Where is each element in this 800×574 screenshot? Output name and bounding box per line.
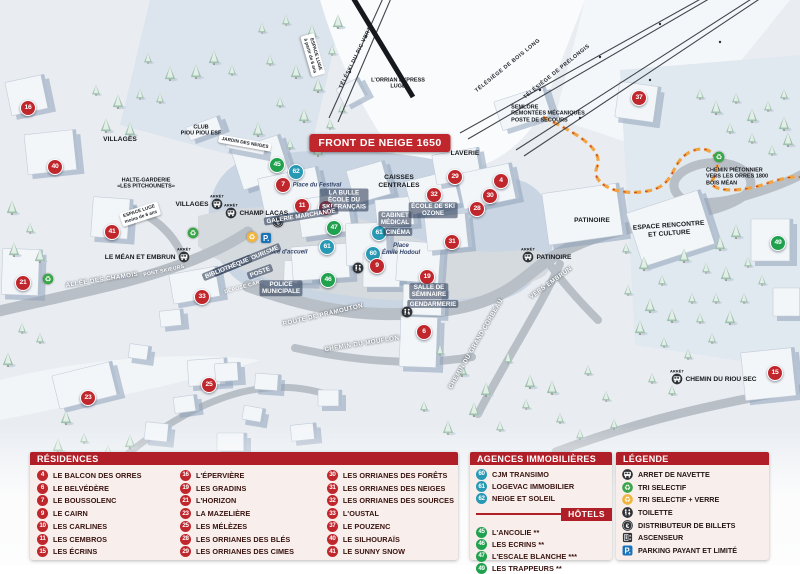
map-label: TÉLÉSIÈGE DE PRÉLONGIS xyxy=(523,43,592,101)
item-number-badge: 33 xyxy=(327,508,338,519)
residences-column-1: 4LE BALCON DES ORRES6LE BELVÉDÈRE7LE BOU… xyxy=(37,470,180,557)
panel-legende-title: LÉGENDE xyxy=(616,452,769,465)
residence-item: 21L'HORIZON xyxy=(180,495,327,506)
residences-list: 4LE BALCON DES ORRES6LE BELVÉDÈRE7LE BOU… xyxy=(30,465,458,557)
residence-item: 10LES CARLINES xyxy=(37,521,180,532)
svg-text:P.: P. xyxy=(625,546,631,555)
residence-item: 23LA MAZELIÈRE xyxy=(180,508,327,519)
legende-label: TRI SELECTIF + VERRE xyxy=(638,495,719,504)
arret-label: ARRÊT xyxy=(521,247,535,251)
item-number-badge: 62 xyxy=(476,493,487,504)
map-marker-15: 15 xyxy=(767,365,783,381)
residence-item: 6LE BELVÉDÈRE xyxy=(37,483,180,494)
map-marker-47: 47 xyxy=(326,220,342,236)
item-number-badge: 15 xyxy=(37,546,48,557)
hotels-divider: HÔTELS xyxy=(476,508,612,521)
item-number-badge: 45 xyxy=(476,527,487,538)
item-number-badge: 10 xyxy=(37,521,48,532)
item-number-badge: 6 xyxy=(37,483,48,494)
item-number-badge: 31 xyxy=(327,483,338,494)
residence-item: 29LES ORRIANES DES CIMES xyxy=(180,546,327,557)
item-label: LE POUZENC xyxy=(343,522,391,531)
map-label: CABINET MÉDICAL xyxy=(378,211,411,227)
map-label: PONT SKIEURS xyxy=(143,264,185,279)
residence-item: 40LE SILHOURAÏS xyxy=(327,533,454,544)
agence-item: 60CJM TRANSIMO xyxy=(476,469,607,480)
map-label: CHEMIN DU MOUFLON xyxy=(324,334,400,353)
item-label: LE SUNNY SNOW xyxy=(343,547,405,556)
bus-icon xyxy=(226,208,237,219)
item-label: LE BOUSSOLENC xyxy=(53,496,117,505)
recycle-green-icon: ♻ xyxy=(43,274,54,285)
bus-stop: ARRÊTCHEMIN DU RIOU SEC xyxy=(672,374,683,385)
hotels-divider-line xyxy=(476,513,561,516)
item-number-badge: 9 xyxy=(37,508,48,519)
bus-stop: ARRÊTLE MÉAN ET EMBRUN xyxy=(179,252,190,263)
item-number-badge: 19 xyxy=(180,483,191,494)
bus-icon xyxy=(212,199,223,210)
item-number-badge: 60 xyxy=(476,469,487,480)
panel-residences: RÉSIDENCES 4LE BALCON DES ORRES6LE BELVÉ… xyxy=(30,452,458,560)
item-label: LES ORRIANES DES CIMES xyxy=(196,547,294,556)
map-marker-37: 37 xyxy=(631,90,647,106)
map-label: CHEMIN PIÉTONNIER VERS LES ORRES 1800 BO… xyxy=(706,167,768,186)
svg-text:♻: ♻ xyxy=(190,229,197,238)
item-number-badge: 23 xyxy=(180,508,191,519)
legende-label: ASCENSEUR xyxy=(638,533,683,542)
item-number-badge: 25 xyxy=(180,521,191,532)
residence-item: 31LES ORRIANES DES NEIGES xyxy=(327,483,454,494)
item-label: LE BALCON DES ORRES xyxy=(53,471,142,480)
parking-icon: P. xyxy=(261,233,272,244)
hotel-item: 45L'ANCOLIE ** xyxy=(476,527,607,538)
legende-label: PARKING PAYANT ET LIMITÉ xyxy=(638,546,737,555)
item-number-badge: 21 xyxy=(180,495,191,506)
map-label: CAISSES CENTRALES xyxy=(378,174,419,190)
legende-label: DISTRIBUTEUR DE BILLETS xyxy=(638,521,735,530)
legende-label: ARRET DE NAVETTE xyxy=(638,470,710,479)
item-label: L'ESCALE BLANCHE *** xyxy=(492,552,577,561)
map-label: Place Émile Hodoul xyxy=(382,243,420,257)
map-label: JARDIN DES NEIGES xyxy=(218,134,272,151)
map-label: VILLAGES xyxy=(103,136,137,144)
panel-agences-hotels: AGENCES IMMOBILIÈRES 60CJM TRANSIMO61LOG… xyxy=(470,452,612,560)
map-marker-49: 49 xyxy=(770,235,786,251)
item-label: LE SILHOURAÏS xyxy=(343,535,400,544)
recycle-green-icon: ♻ xyxy=(622,482,633,493)
map-label: TÉLÉSKI DU PIC VERT xyxy=(338,26,373,90)
legende-item: ♻TRI SELECTIF + VERRE xyxy=(622,494,764,506)
map-label: L'ORRIAN EXPRESS LUGE xyxy=(371,78,425,91)
residence-item: 37LE POUZENC xyxy=(327,521,454,532)
legende-item: ARRET DE NAVETTE xyxy=(622,469,764,481)
bus-stop: ARRÊTPATINOIRE xyxy=(523,252,534,263)
legende-item: P.PARKING PAYANT ET LIMITÉ xyxy=(622,545,764,557)
hotel-item: 46LES ECRINS ** xyxy=(476,539,607,550)
map-label: TÉLÉSIÈGE DE BOIS LONG xyxy=(474,38,542,95)
atm-icon: € xyxy=(622,520,633,531)
bus-stop: ARRÊTCHAMP LACAS xyxy=(226,208,237,219)
residences-column-2: 16L'ÉPERVIÈRE19LES GRADINS21L'HORIZON23L… xyxy=(180,470,327,557)
bus-icon xyxy=(179,252,190,263)
map-label: PATINOIRE xyxy=(574,217,610,225)
item-label: LES CEMBROS xyxy=(53,535,107,544)
item-label: CJM TRANSIMO xyxy=(492,470,549,479)
svg-text:♻: ♻ xyxy=(45,275,52,284)
resort-map-page: FRONT DE NEIGE 1650 16404121233325456271… xyxy=(0,0,800,565)
map-marker-33: 33 xyxy=(194,289,210,305)
item-label: LES CARLINES xyxy=(53,522,107,531)
map-marker-32: 32 xyxy=(426,187,442,203)
item-number-badge: 61 xyxy=(476,481,487,492)
residence-item: 16L'ÉPERVIÈRE xyxy=(180,470,327,481)
bus-icon xyxy=(622,469,633,480)
map-marker-6: 6 xyxy=(416,324,432,340)
map-label: LAVERIE xyxy=(451,150,480,158)
residence-item: 25LES MÉLÈZES xyxy=(180,521,327,532)
item-number-badge: 41 xyxy=(327,546,338,557)
item-label: LES ECRINS ** xyxy=(492,540,544,549)
arret-label: ARRÊT xyxy=(210,194,224,198)
map-label: DÉPOSE CARS xyxy=(224,279,264,296)
item-number-badge: 29 xyxy=(180,546,191,557)
map-marker-9: 9 xyxy=(369,258,385,274)
item-number-badge: 40 xyxy=(327,534,338,545)
map-marker-40: 40 xyxy=(47,159,63,175)
map-label: GENDARMERIE xyxy=(407,300,458,308)
item-number-badge: 4 xyxy=(37,470,48,481)
panel-agences-title: AGENCES IMMOBILIÈRES xyxy=(470,452,612,465)
item-label: LES TRAPPEURS ** xyxy=(492,564,562,573)
arret-label: ARRÊT xyxy=(224,203,238,207)
svg-text:♻: ♻ xyxy=(624,496,631,505)
map-label: ROUTE DE PRAMOUTON xyxy=(282,302,364,328)
residence-item: 41LE SUNNY SNOW xyxy=(327,546,454,557)
legende-list: ARRET DE NAVETTE♻TRI SELECTIF♻TRI SELECT… xyxy=(616,465,769,556)
bus-stop-label: VILLAGES xyxy=(176,201,209,208)
residence-item: 9LE CAIRN xyxy=(37,508,180,519)
agence-item: 62NEIGE ET SOLEIL xyxy=(476,493,607,504)
agences-list: 60CJM TRANSIMO61LOGEVAC IMMOBILIER62NEIG… xyxy=(470,465,612,505)
legende-item: €DISTRIBUTEUR DE BILLETS xyxy=(622,519,764,531)
map-label: BIBLIOTHÈQUE xyxy=(201,254,252,281)
map-label: ÉCOLE DE SKI OZONE xyxy=(409,202,458,218)
item-label: L'ÉPERVIÈRE xyxy=(196,471,244,480)
bus-icon xyxy=(672,374,683,385)
residence-item: 19LES GRADINS xyxy=(180,483,327,494)
map-label: CHEMIN DU GRAND CORBEAU xyxy=(447,298,505,391)
map-marker-25: 25 xyxy=(201,377,217,393)
wc-icon xyxy=(353,263,364,274)
svg-text:♻: ♻ xyxy=(249,233,256,242)
panel-legende: LÉGENDE ARRET DE NAVETTE♻TRI SELECTIF♻TR… xyxy=(616,452,769,560)
item-label: L'ANCOLIE ** xyxy=(492,528,539,537)
item-label: L'HORIZON xyxy=(196,496,236,505)
item-number-badge: 47 xyxy=(476,551,487,562)
residence-item: 30LES ORRIANES DES FORÊTS xyxy=(327,470,454,481)
map-marker-28: 28 xyxy=(469,201,485,217)
map-marker-16: 16 xyxy=(20,100,36,116)
item-label: LES ÉCRINS xyxy=(53,547,97,556)
bus-stop-label: CHEMIN DU RIOU SEC xyxy=(686,376,757,383)
item-number-badge: 32 xyxy=(327,495,338,506)
map-marker-45: 45 xyxy=(269,157,285,173)
arret-label: ARRÊT xyxy=(670,369,684,373)
map-label: ALLÉE DES CHAMOIS xyxy=(65,271,139,290)
bus-stop: ARRÊTVILLAGES xyxy=(212,199,223,210)
item-number-badge: 7 xyxy=(37,495,48,506)
map-label: ESPACE LUGE à partir de 6 ans xyxy=(301,33,326,77)
residence-item: 32LES ORRIANES DES SOURCES xyxy=(327,495,454,506)
map-overlay: FRONT DE NEIGE 1650 16404121233325456271… xyxy=(0,0,800,452)
bus-stop-label: LE MÉAN ET EMBRUN xyxy=(105,254,176,261)
item-number-badge: 46 xyxy=(476,539,487,550)
map-marker-41: 41 xyxy=(104,224,120,240)
item-number-badge: 28 xyxy=(180,534,191,545)
map-label: ESPACE RENCONTRE ET CULTURE xyxy=(633,220,706,241)
bus-stop-label: PATINOIRE xyxy=(537,254,572,261)
map-label: VERS EMBRUN xyxy=(528,265,573,301)
map-marker-21: 21 xyxy=(15,275,31,291)
item-label: L'OUSTAL xyxy=(343,509,379,518)
recycle-green-icon: ♻ xyxy=(714,152,725,163)
wc-icon xyxy=(622,507,633,518)
item-label: NEIGE ET SOLEIL xyxy=(492,494,555,503)
item-number-badge: 16 xyxy=(180,470,191,481)
residence-item: 7LE BOUSSOLENC xyxy=(37,495,180,506)
item-label: LES ORRIANES DES FORÊTS xyxy=(343,471,448,480)
residence-item: 11LES CEMBROS xyxy=(37,533,180,544)
item-label: LES ORRIANES DES SOURCES xyxy=(343,496,454,505)
panel-residences-title: RÉSIDENCES xyxy=(30,452,458,465)
legende-label: TRI SELECTIF xyxy=(638,483,686,492)
map-marker-7: 7 xyxy=(275,177,291,193)
parking-icon: P. xyxy=(622,545,633,556)
item-number-badge: 11 xyxy=(37,534,48,545)
item-label: LES GRADINS xyxy=(196,484,246,493)
item-label: LOGEVAC IMMOBILIER xyxy=(492,482,574,491)
map-label: CINÉMA xyxy=(383,228,412,236)
map-label: POLICE MUNICIPALE xyxy=(259,280,302,296)
map-label: SALLE DE SÉMINAIRE xyxy=(409,283,448,299)
svg-text:€: € xyxy=(626,522,630,529)
legende-item: ♻TRI SELECTIF xyxy=(622,482,764,494)
hotel-item: 47L'ESCALE BLANCHE *** xyxy=(476,551,607,562)
front-de-neige-banner: FRONT DE NEIGE 1650 xyxy=(309,134,450,152)
arret-label: ARRÊT xyxy=(177,247,191,251)
map-marker-31: 31 xyxy=(444,234,460,250)
map-label: ESPACE LUGE moins de 6 ans xyxy=(119,201,161,226)
item-number-badge: 30 xyxy=(327,470,338,481)
recycle-yellow-icon: ♻ xyxy=(622,494,633,505)
residence-item: 15LES ÉCRINS xyxy=(37,546,180,557)
item-label: LES ORRIANES DES NEIGES xyxy=(343,484,446,493)
map-label: HALTE-GARDERIE «LES PITCHOUNETS» xyxy=(117,178,175,191)
residences-column-3: 30LES ORRIANES DES FORÊTS31LES ORRIANES … xyxy=(327,470,454,557)
map-marker-30: 30 xyxy=(482,188,498,204)
svg-text:♻: ♻ xyxy=(716,153,723,162)
map-label: POSTE xyxy=(246,264,273,281)
legende-item: TOILETTE xyxy=(622,507,764,519)
item-label: LES ORRIANES DES BLÉS xyxy=(196,535,290,544)
recycle-yellow-icon: ♻ xyxy=(247,232,258,243)
map-marker-62: 62 xyxy=(288,164,304,180)
map-marker-29: 29 xyxy=(447,169,463,185)
item-label: LE BELVÉDÈRE xyxy=(53,484,109,493)
hotels-list: 45L'ANCOLIE **46LES ECRINS **47L'ESCALE … xyxy=(470,523,612,574)
svg-text:♻: ♻ xyxy=(624,483,631,492)
wc-icon xyxy=(402,307,413,318)
residence-item: 33L'OUSTAL xyxy=(327,508,454,519)
legende-label: TOILETTE xyxy=(638,508,673,517)
svg-text:P.: P. xyxy=(263,234,269,243)
map-label: SEMLORE REMONTÉES MÉCANIQUES POSTE DE SE… xyxy=(511,104,585,123)
map-marker-4: 4 xyxy=(493,173,509,189)
legende-item: ASCENSEUR xyxy=(622,532,764,544)
map-marker-23: 23 xyxy=(80,390,96,406)
agence-item: 61LOGEVAC IMMOBILIER xyxy=(476,481,607,492)
item-label: LA MAZELIÈRE xyxy=(196,509,250,518)
panel-hotels-title: HÔTELS xyxy=(561,508,612,521)
item-number-badge: 37 xyxy=(327,521,338,532)
bus-icon xyxy=(523,252,534,263)
elevator-icon xyxy=(622,532,633,543)
item-label: LE CAIRN xyxy=(53,509,88,518)
map-label: CLUB PIOU PIOU ESF xyxy=(181,125,222,138)
map-marker-61: 61 xyxy=(319,239,335,255)
item-label: LES MÉLÈZES xyxy=(196,522,247,531)
recycle-green-icon: ♻ xyxy=(188,228,199,239)
residence-item: 28LES ORRIANES DES BLÉS xyxy=(180,533,327,544)
map-marker-46: 46 xyxy=(320,272,336,288)
residence-item: 4LE BALCON DES ORRES xyxy=(37,470,180,481)
